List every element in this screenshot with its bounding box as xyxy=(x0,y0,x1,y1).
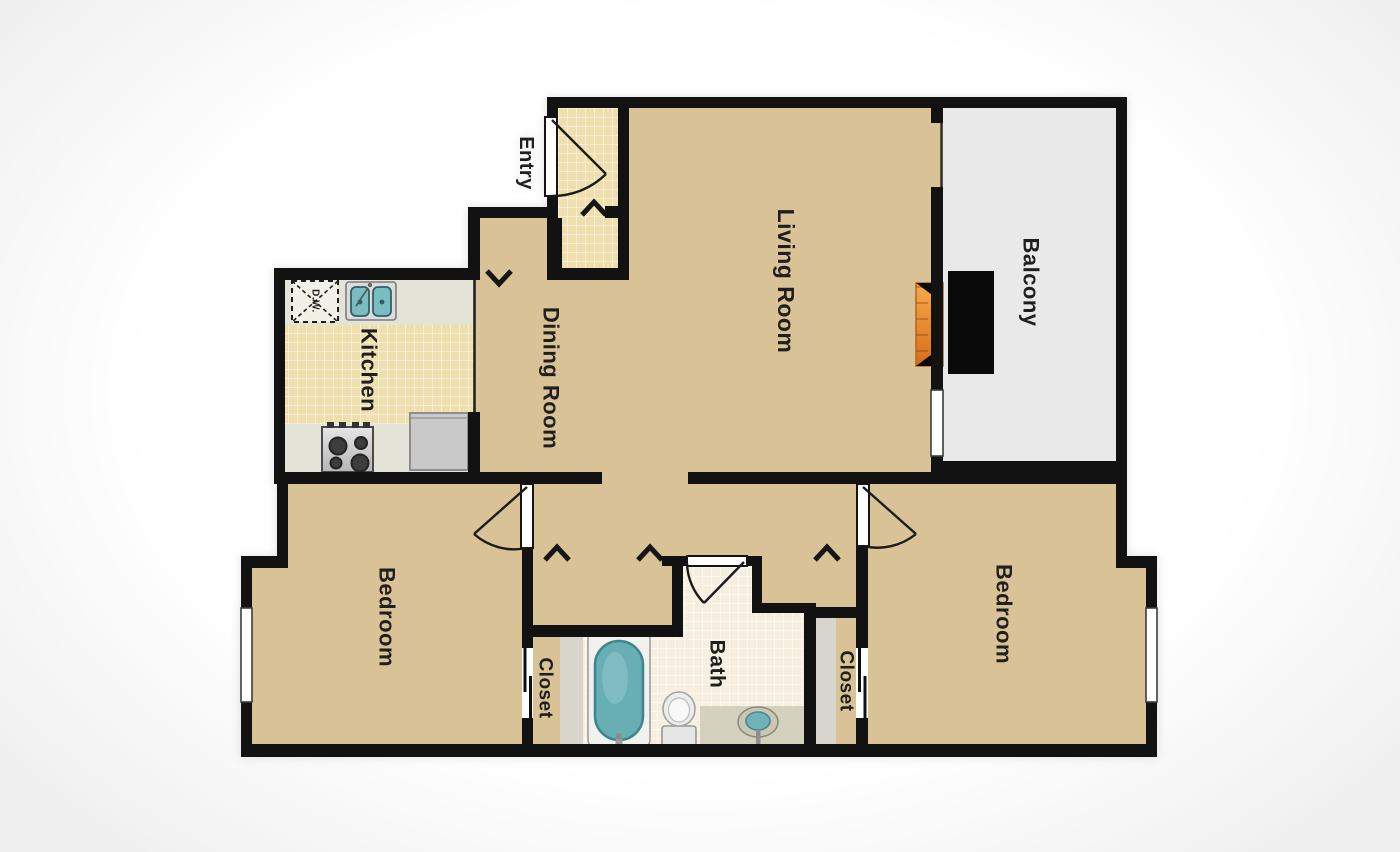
wall-segment xyxy=(547,97,558,117)
entry-label: Entry xyxy=(515,136,537,190)
living-room-label: Living Room xyxy=(773,209,799,354)
bathtub xyxy=(588,632,650,748)
wall-segment xyxy=(1146,556,1157,608)
wall-segment xyxy=(274,268,480,280)
wall-segment xyxy=(931,187,943,390)
balcony-label: Balcony xyxy=(1019,237,1044,326)
kitchen-sink xyxy=(346,282,396,320)
dining-room-label: Dining Room xyxy=(539,307,564,449)
wall-segment xyxy=(468,207,558,218)
wall-segment xyxy=(931,461,1127,472)
wall-segment xyxy=(605,206,629,218)
wall-segment xyxy=(856,546,868,648)
closet-left-label: Closet xyxy=(535,657,556,718)
wall-segment xyxy=(688,472,1125,484)
bedroom-left-label: Bedroom xyxy=(375,567,400,667)
dishwasher: D.W. xyxy=(292,281,338,322)
range-stove xyxy=(322,422,373,472)
wall-segment xyxy=(1146,702,1157,757)
wall-segment xyxy=(618,97,629,268)
wall-segment xyxy=(522,548,533,648)
fireplace xyxy=(916,271,994,374)
wall-segment xyxy=(468,207,480,268)
bedroom-right-label: Bedroom xyxy=(992,564,1017,664)
refrigerator xyxy=(410,413,468,470)
sliding-patio-door xyxy=(931,390,943,456)
wall-segment xyxy=(1116,97,1127,568)
dishwasher-label: D.W. xyxy=(310,289,321,313)
wall-segment xyxy=(856,718,868,745)
floor-plan: D.W. xyxy=(0,0,1400,852)
closet-right-label: Closet xyxy=(836,650,857,711)
wall-segment xyxy=(522,718,533,745)
bedroom-left-window xyxy=(241,608,252,702)
kitchen-label: Kitchen xyxy=(357,328,382,412)
toilet xyxy=(662,692,696,746)
wall-segment xyxy=(662,556,687,566)
closet-right-shelf xyxy=(816,618,836,745)
wall-segment xyxy=(547,218,562,268)
wall-segment xyxy=(241,744,1157,757)
wall-segment xyxy=(547,97,1127,108)
wall-segment xyxy=(931,97,943,123)
floor-plan-page: D.W. xyxy=(0,0,1400,852)
wall-segment xyxy=(241,556,252,608)
wall-segment xyxy=(277,472,288,557)
bath-label: Bath xyxy=(706,640,729,689)
wall-segment xyxy=(274,472,602,484)
wall-segment xyxy=(672,566,683,637)
wall-segment xyxy=(804,603,816,745)
wall-segment xyxy=(533,625,683,637)
bedroom-right-window xyxy=(1146,608,1157,702)
vanity-sink xyxy=(700,706,804,745)
closet-left-shelf xyxy=(560,637,583,744)
wall-segment xyxy=(547,268,629,280)
wall-segment xyxy=(274,268,285,484)
